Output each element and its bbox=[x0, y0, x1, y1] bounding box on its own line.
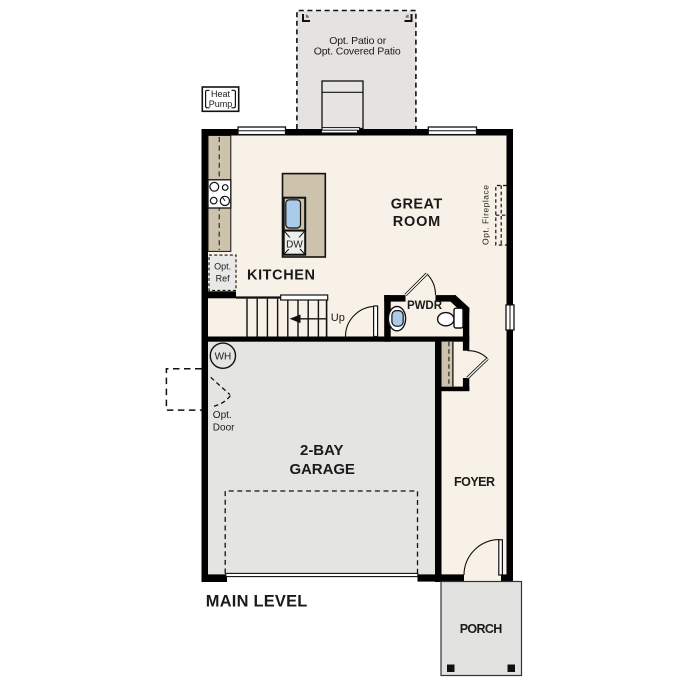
svg-text:Up: Up bbox=[331, 312, 345, 324]
svg-text:FOYER: FOYER bbox=[454, 475, 495, 489]
svg-text:Opt. Fireplace: Opt. Fireplace bbox=[480, 185, 490, 245]
svg-text:Opt. Covered Patio: Opt. Covered Patio bbox=[314, 45, 401, 57]
svg-text:ROOM: ROOM bbox=[393, 214, 441, 230]
svg-text:Heat: Heat bbox=[211, 89, 231, 99]
svg-text:Ref: Ref bbox=[216, 273, 231, 283]
svg-text:2-BAY: 2-BAY bbox=[300, 442, 344, 459]
svg-text:GARAGE: GARAGE bbox=[289, 461, 355, 478]
svg-text:Opt.: Opt. bbox=[214, 261, 231, 271]
svg-text:PORCH: PORCH bbox=[460, 622, 503, 636]
svg-text:MAIN LEVEL: MAIN LEVEL bbox=[206, 593, 307, 611]
svg-text:Opt.: Opt. bbox=[213, 410, 232, 421]
svg-text:WH: WH bbox=[215, 352, 232, 363]
svg-text:Door: Door bbox=[213, 422, 235, 433]
svg-text:GREAT: GREAT bbox=[391, 197, 443, 213]
svg-text:Pump: Pump bbox=[209, 99, 233, 109]
svg-text:PWDR: PWDR bbox=[407, 300, 443, 312]
svg-text:DW: DW bbox=[286, 240, 303, 251]
svg-text:KITCHEN: KITCHEN bbox=[247, 268, 315, 284]
